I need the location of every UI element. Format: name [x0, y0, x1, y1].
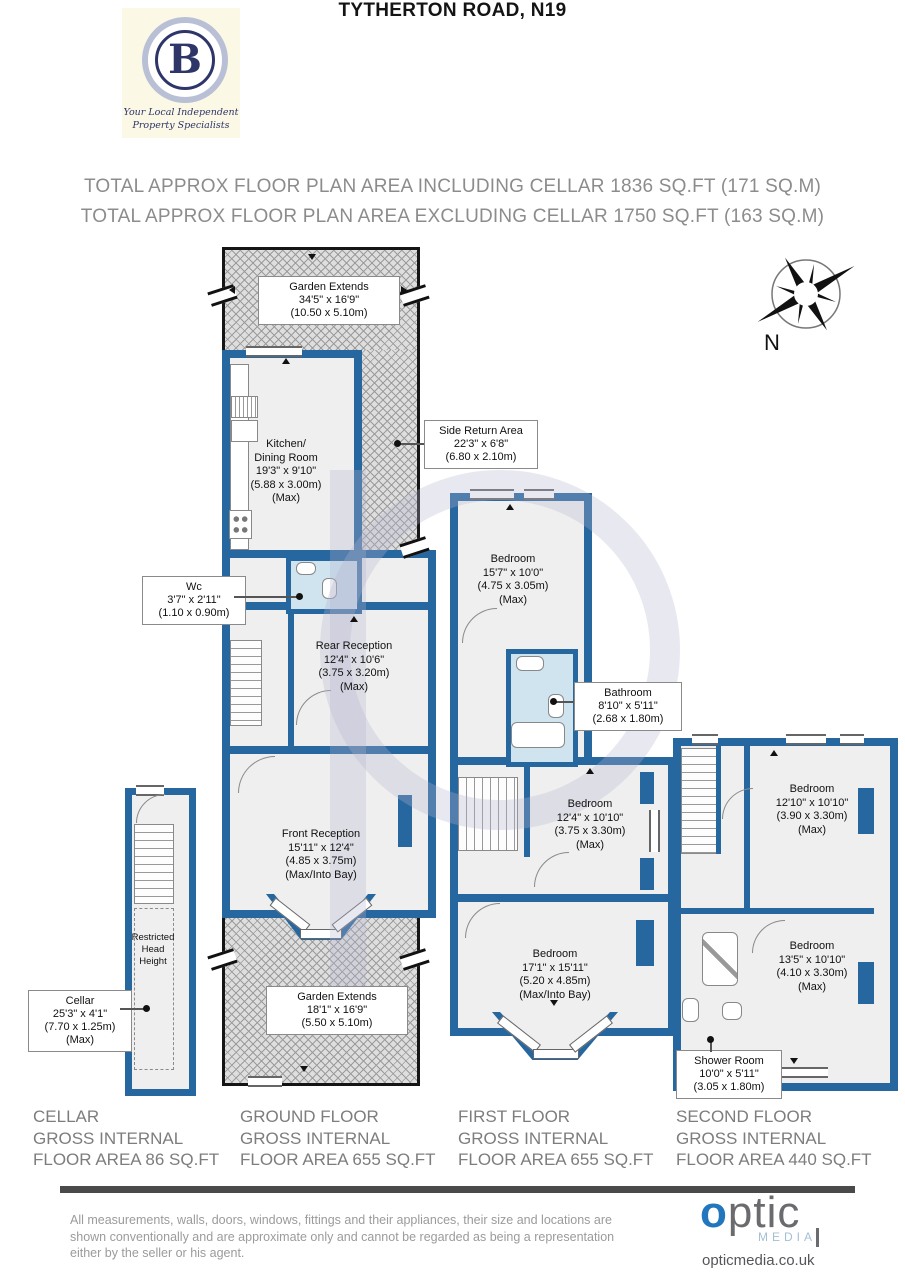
internal-wall [716, 746, 721, 854]
measure-arrow [229, 286, 235, 294]
bathroom-label: Bathroom8'10" x 5'11"(2.68 x 1.80m) [574, 682, 682, 731]
kitchen-label: Kitchen/Dining Room19'3" x 9'10"(5.88 x … [232, 438, 340, 506]
total-area-excluding-label: TOTAL APPROX FLOOR PLAN AREA EXCLUDING C… [0, 206, 905, 228]
hob-icon [229, 510, 252, 539]
ff-bedroom-middle-label: Bedroom12'4" x 10'10"(3.75 x 3.30m)(Max) [535, 798, 645, 852]
sink-icon [296, 562, 316, 575]
optic-wordmark: optic [700, 1192, 870, 1234]
sf-bedroom-front-label: Bedroom13'5" x 10'10"(4.10 x 3.30m)(Max) [752, 940, 872, 994]
measure-arrow [282, 358, 290, 364]
leader-line [399, 443, 424, 445]
leader-dot [394, 440, 401, 447]
rear-reception-label: Rear Reception12'4" x 10'6"(3.75 x 3.20m… [299, 640, 409, 694]
window [246, 346, 302, 357]
toilet-icon [322, 578, 337, 599]
bath-icon [511, 722, 565, 748]
disclaimer-text: All measurements, walls, doors, windows,… [70, 1212, 614, 1262]
measure-arrow [300, 1066, 308, 1072]
window [524, 489, 554, 500]
floor-summary-second: SECOND FLOORGROSS INTERNALFLOOR AREA 440… [676, 1106, 872, 1171]
window [840, 734, 864, 745]
measure-arrow [350, 616, 358, 622]
measure-arrow [401, 286, 407, 294]
optic-i-descender [816, 1228, 819, 1247]
fridge-icon [231, 396, 258, 418]
bay-window [266, 894, 376, 940]
sf-bedroom-rear-label: Bedroom12'10" x 10'10"(3.90 x 3.30m)(Max… [752, 783, 872, 837]
internal-wall [744, 746, 750, 914]
window [470, 489, 514, 500]
restricted-head-height-label: RestrictedHeadHeight [128, 932, 178, 968]
stairs [681, 748, 717, 854]
window [649, 810, 660, 852]
sink-icon [516, 656, 544, 671]
measure-arrow [308, 254, 316, 260]
stairs [458, 777, 518, 851]
optic-url: opticmedia.co.uk [702, 1252, 815, 1269]
agency-logo-icon: B [142, 17, 228, 103]
side-return-label: Side Return Area22'3" x 6'8"(6.80 x 2.10… [424, 420, 538, 469]
optic-media-label: MEDIA [758, 1230, 816, 1244]
chimney-breast [398, 795, 412, 847]
measure-arrow [790, 1058, 798, 1064]
optic-media-logo: optic MEDIA opticmedia.co.uk [700, 1192, 870, 1234]
floor-summary-cellar: CELLARGROSS INTERNALFLOOR AREA 86 SQ.FT [33, 1106, 219, 1171]
measure-arrow [586, 768, 594, 774]
measure-arrow [770, 750, 778, 756]
leader-line [556, 701, 574, 703]
agency-tagline-line2: Property Specialists [122, 119, 240, 132]
total-area-including-label: TOTAL APPROX FLOOR PLAN AREA INCLUDING C… [0, 176, 905, 198]
garden-gate [248, 1076, 282, 1087]
bay-window [492, 1012, 618, 1060]
leader-dot [296, 593, 303, 600]
wc-label: Wc3'7" x 2'11"(1.10 x 0.90m) [142, 576, 246, 625]
agency-logo-letter: B [168, 40, 202, 80]
internal-wall [288, 610, 294, 746]
sink-icon [722, 1002, 742, 1020]
leader-line [234, 596, 298, 598]
leader-dot [707, 1036, 714, 1043]
toilet-icon [682, 998, 699, 1022]
internal-wall [681, 908, 874, 914]
compass-north-label: N [764, 330, 780, 354]
chimney-breast [640, 858, 654, 890]
page-title: TYTHERTON ROAD, N19 [0, 0, 905, 22]
measure-arrow [506, 504, 514, 510]
agency-logo: B Your Local Independent Property Specia… [122, 8, 240, 138]
toilet-icon [548, 694, 564, 718]
chimney-breast [636, 920, 654, 966]
agency-tagline-line1: Your Local Independent [122, 106, 240, 119]
leader-dot [550, 698, 557, 705]
ff-bedroom-front-label: Bedroom17'1" x 15'11"(5.20 x 4.85m)(Max/… [495, 948, 615, 1002]
floorplan-page: B Your Local Independent Property Specia… [0, 0, 905, 1280]
internal-wall [524, 765, 530, 857]
optic-o-icon: o [700, 1188, 728, 1237]
shower-icon [702, 932, 738, 986]
window [692, 734, 718, 745]
front-reception-label: Front Reception15'11" x 12'4"(4.85 x 3.7… [261, 828, 381, 882]
floor-summary-first: FIRST FLOORGROSS INTERNALFLOOR AREA 655 … [458, 1106, 654, 1171]
shower-room-label: Shower Room10'0" x 5'11"(3.05 x 1.80m) [676, 1050, 782, 1099]
stairs [134, 824, 174, 904]
compass-rose-icon: N [744, 250, 864, 354]
window [786, 734, 826, 745]
stairs [230, 640, 262, 726]
garden-rear-label: Garden Extends34'5" x 16'9"(10.50 x 5.10… [258, 276, 400, 325]
agency-logo-inner-ring: B [155, 30, 215, 90]
garden-front-label: Garden Extends18'1" x 16'9"(5.50 x 5.10m… [266, 986, 408, 1035]
floor-summary-ground: GROUND FLOORGROSS INTERNALFLOOR AREA 655… [240, 1106, 436, 1171]
agency-tagline: Your Local Independent Property Speciali… [122, 106, 240, 132]
window [776, 1067, 828, 1078]
cellar-label: Cellar25'3" x 4'1"(7.70 x 1.25m)(Max) [28, 990, 132, 1052]
ff-bedroom-rear-label: Bedroom15'7" x 10'0"(4.75 x 3.05m)(Max) [458, 553, 568, 607]
window [533, 1049, 579, 1059]
leader-dot [143, 1005, 150, 1012]
